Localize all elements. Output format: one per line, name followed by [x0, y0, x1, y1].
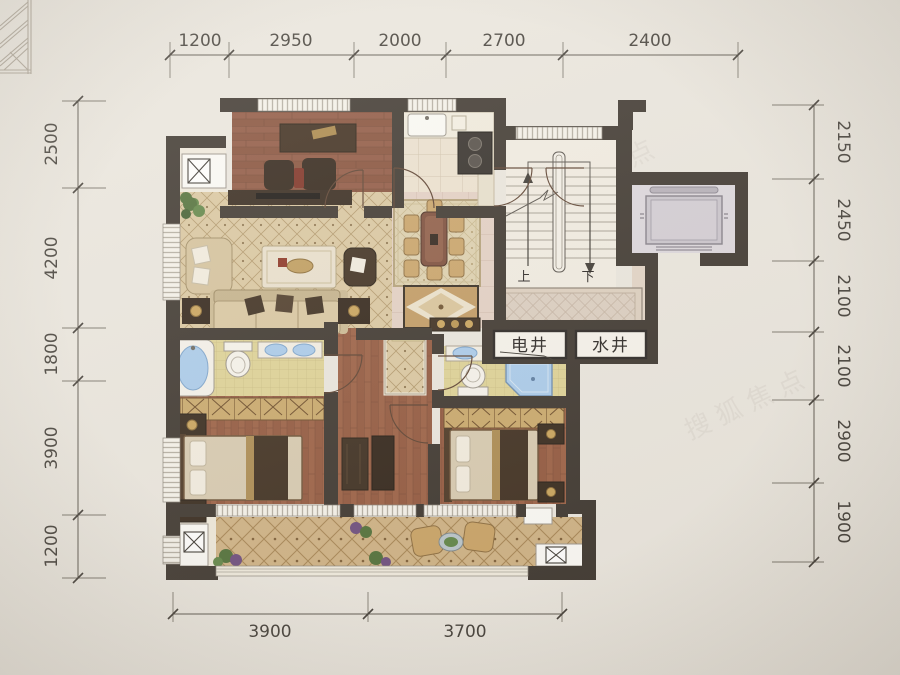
dim-bottom-1: 3900	[248, 622, 291, 642]
sink	[265, 344, 287, 356]
burner	[469, 155, 482, 168]
sofa-pillow	[275, 294, 294, 313]
lamp	[187, 420, 197, 430]
stair-down-label: 下	[581, 269, 594, 284]
bed-runner-gold	[246, 436, 254, 500]
pillow	[456, 466, 470, 492]
plant	[181, 209, 191, 219]
pillow	[190, 441, 206, 466]
dim-right-3: 2100	[833, 274, 853, 317]
floor-cushion	[462, 521, 496, 553]
tub-faucet	[191, 346, 195, 350]
window	[424, 505, 516, 516]
balcony-railing	[216, 566, 528, 576]
pillow	[192, 267, 210, 285]
window	[516, 127, 602, 139]
floor-plan-photo: 搜狐焦点 搜狐焦点 搜狐焦点 搜狐焦点	[0, 0, 900, 675]
drain	[531, 377, 535, 381]
decor-item	[278, 258, 287, 267]
kitchen-appliance	[452, 116, 466, 130]
dim-top-2: 2950	[269, 31, 312, 51]
sink	[293, 344, 315, 356]
dim-right-1: 2150	[833, 120, 853, 163]
water-shaft-label: 水井	[592, 336, 630, 355]
lamp	[547, 430, 556, 439]
window	[163, 438, 180, 502]
centerpiece	[430, 234, 438, 245]
washing-machine-icon	[184, 532, 204, 552]
study-chair	[302, 158, 336, 190]
dim-right-5: 2900	[833, 419, 853, 462]
window	[354, 505, 416, 516]
pillow	[190, 470, 206, 495]
entry-console	[430, 318, 480, 331]
plant	[369, 551, 383, 565]
balcony-door-leaf	[524, 508, 552, 524]
pillow	[350, 257, 366, 273]
stair-up-label: 上	[517, 269, 530, 284]
tray	[287, 259, 313, 273]
study-stool	[294, 168, 304, 188]
bed-throw	[500, 430, 528, 500]
floor-plan-svg: 搜狐焦点 搜狐焦点 搜狐焦点 搜狐焦点	[0, 0, 900, 675]
washing-machine-icon	[188, 159, 210, 183]
washing-machine-icon	[546, 547, 566, 563]
plant	[230, 554, 242, 566]
dim-left-5: 1200	[42, 524, 62, 567]
sink	[453, 347, 477, 359]
study-chair	[264, 160, 294, 190]
bed-throw	[254, 436, 288, 500]
dim-left-1: 2500	[42, 122, 62, 165]
window	[163, 224, 180, 300]
plant	[381, 557, 391, 567]
dim-right-6: 1900	[833, 500, 853, 543]
window	[216, 505, 340, 516]
dim-left-4: 3900	[42, 426, 62, 469]
faucet	[425, 116, 429, 120]
dim-right-4: 2100	[833, 344, 853, 387]
toilet-tank	[224, 342, 252, 351]
sofa-pillow	[305, 296, 324, 315]
tv	[256, 193, 320, 199]
pillow	[456, 436, 470, 462]
lamp	[547, 488, 556, 497]
plant	[360, 526, 372, 538]
window	[258, 99, 350, 111]
window	[408, 99, 456, 111]
dim-top-1: 1200	[178, 31, 221, 51]
window	[163, 536, 180, 564]
elevator	[632, 185, 735, 253]
dim-right-2: 2450	[833, 198, 853, 241]
elevator-counterweight	[650, 187, 718, 193]
dim-left-2: 4200	[42, 236, 62, 279]
electrical-shaft-label: 电井	[511, 336, 549, 355]
dim-top-5: 2400	[628, 31, 671, 51]
dim-left-3: 1800	[42, 332, 62, 375]
plant	[193, 205, 205, 217]
dim-top-4: 2700	[482, 31, 525, 51]
lamp	[191, 306, 202, 317]
pillow	[192, 246, 211, 265]
plant	[213, 557, 223, 567]
stair-stringer	[553, 152, 565, 272]
burner	[469, 138, 482, 151]
hall-cabinet	[372, 436, 394, 490]
hallway-furniture	[342, 436, 394, 490]
hall-cabinet	[342, 438, 368, 490]
bed-runner-gold	[492, 430, 500, 500]
armchair	[186, 238, 232, 294]
lamp	[349, 306, 360, 317]
dim-bottom-2: 3700	[443, 622, 486, 642]
dim-top-3: 2000	[378, 31, 421, 51]
